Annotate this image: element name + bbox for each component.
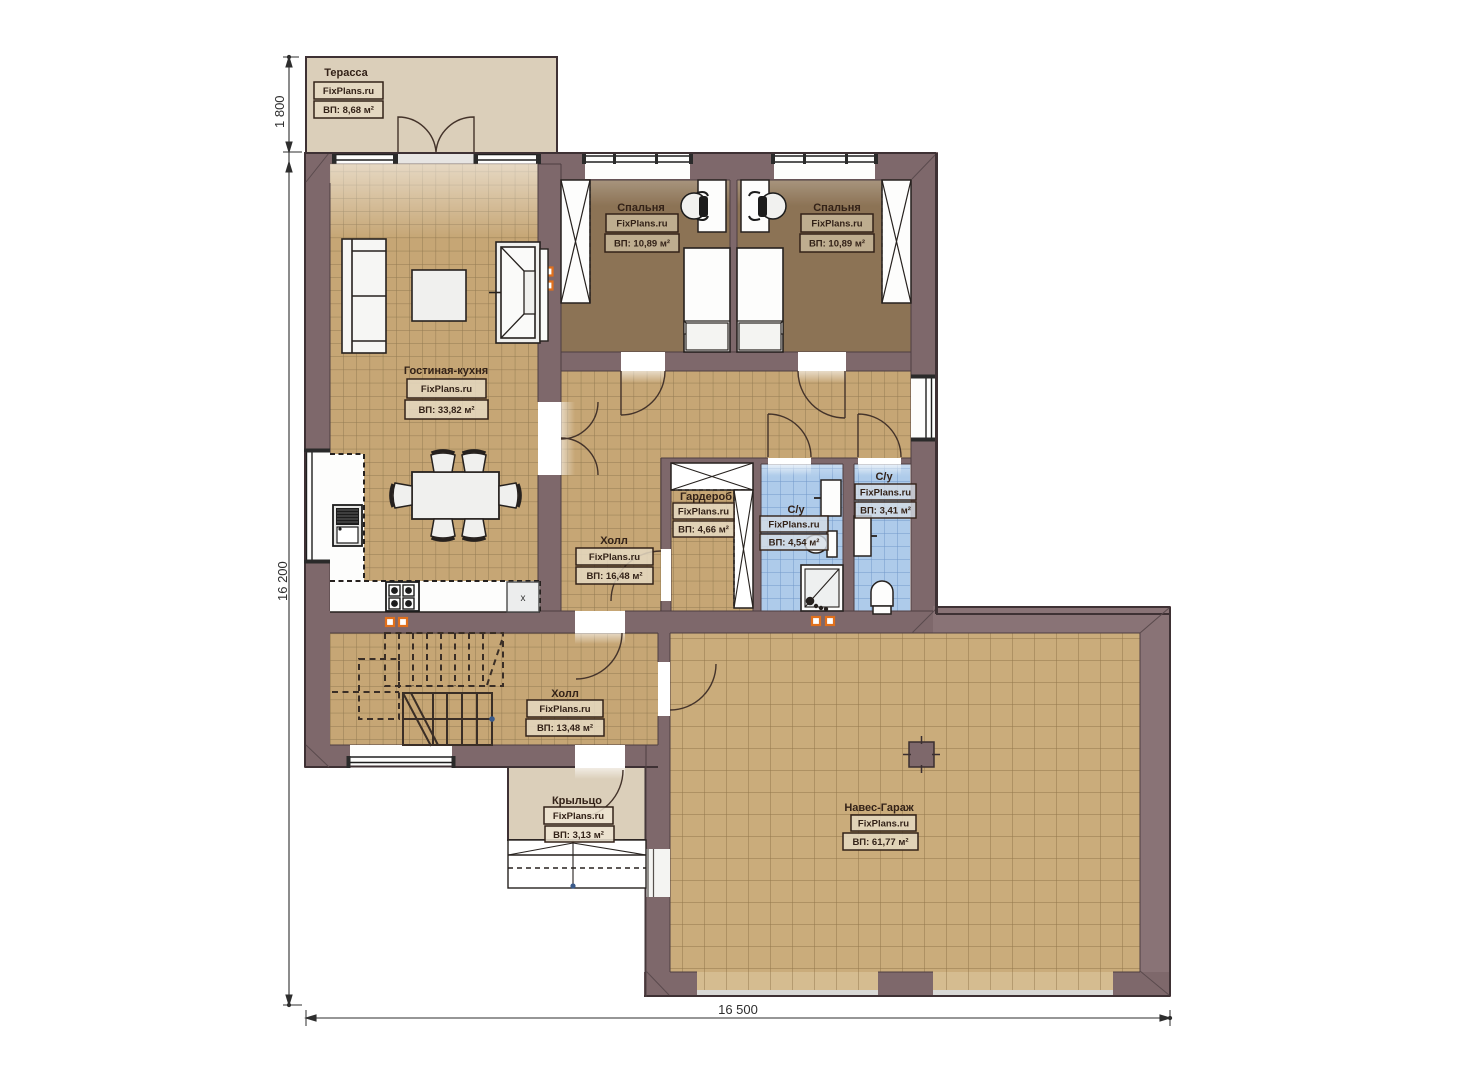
svg-text:Спальня: Спальня — [617, 202, 665, 214]
svg-text:FixPlans.ru: FixPlans.ru — [768, 520, 819, 531]
svg-text:Гардероб: Гардероб — [680, 491, 732, 503]
svg-text:Спальня: Спальня — [813, 202, 861, 214]
svg-text:ВП: 4,66 м²: ВП: 4,66 м² — [678, 525, 729, 536]
svg-text:ВП: 13,48 м²: ВП: 13,48 м² — [537, 723, 593, 734]
svg-text:ВП: 3,41 м²: ВП: 3,41 м² — [860, 506, 911, 517]
svg-text:FixPlans.ru: FixPlans.ru — [323, 86, 374, 97]
svg-text:FixPlans.ru: FixPlans.ru — [860, 488, 911, 499]
svg-text:ВП: 33,82 м²: ВП: 33,82 м² — [418, 405, 474, 416]
svg-text:ВП: 10,89 м²: ВП: 10,89 м² — [614, 239, 670, 250]
svg-text:Терасса: Терасса — [324, 67, 368, 79]
svg-text:Холл: Холл — [600, 535, 628, 547]
svg-text:ВП: 3,13 м²: ВП: 3,13 м² — [553, 830, 604, 841]
svg-text:ВП: 8,68 м²: ВП: 8,68 м² — [323, 105, 374, 116]
svg-text:FixPlans.ru: FixPlans.ru — [616, 219, 667, 230]
svg-text:FixPlans.ru: FixPlans.ru — [678, 507, 729, 518]
svg-text:ВП: 61,77 м²: ВП: 61,77 м² — [852, 837, 908, 848]
svg-text:С/у: С/у — [875, 471, 893, 483]
svg-text:FixPlans.ru: FixPlans.ru — [553, 811, 604, 822]
svg-text:Крыльцо: Крыльцо — [552, 795, 602, 807]
svg-text:1 800: 1 800 — [272, 95, 287, 128]
svg-text:FixPlans.ru: FixPlans.ru — [421, 384, 472, 395]
svg-text:FixPlans.ru: FixPlans.ru — [539, 704, 590, 715]
svg-text:x: x — [521, 593, 526, 604]
svg-text:16 200: 16 200 — [275, 561, 290, 601]
svg-text:ВП: 4,54 м²: ВП: 4,54 м² — [769, 538, 820, 549]
svg-text:FixPlans.ru: FixPlans.ru — [811, 219, 862, 230]
svg-text:16 500: 16 500 — [718, 1002, 758, 1017]
svg-text:Холл: Холл — [551, 688, 579, 700]
svg-text:FixPlans.ru: FixPlans.ru — [589, 552, 640, 563]
svg-text:ВП: 16,48 м²: ВП: 16,48 м² — [586, 571, 642, 582]
svg-text:Навес-Гараж: Навес-Гараж — [844, 802, 913, 814]
svg-text:ВП: 10,89 м²: ВП: 10,89 м² — [809, 239, 865, 250]
svg-text:FixPlans.ru: FixPlans.ru — [858, 819, 909, 830]
svg-text:Гостиная-кухня: Гостиная-кухня — [404, 365, 488, 377]
svg-text:С/у: С/у — [787, 504, 805, 516]
